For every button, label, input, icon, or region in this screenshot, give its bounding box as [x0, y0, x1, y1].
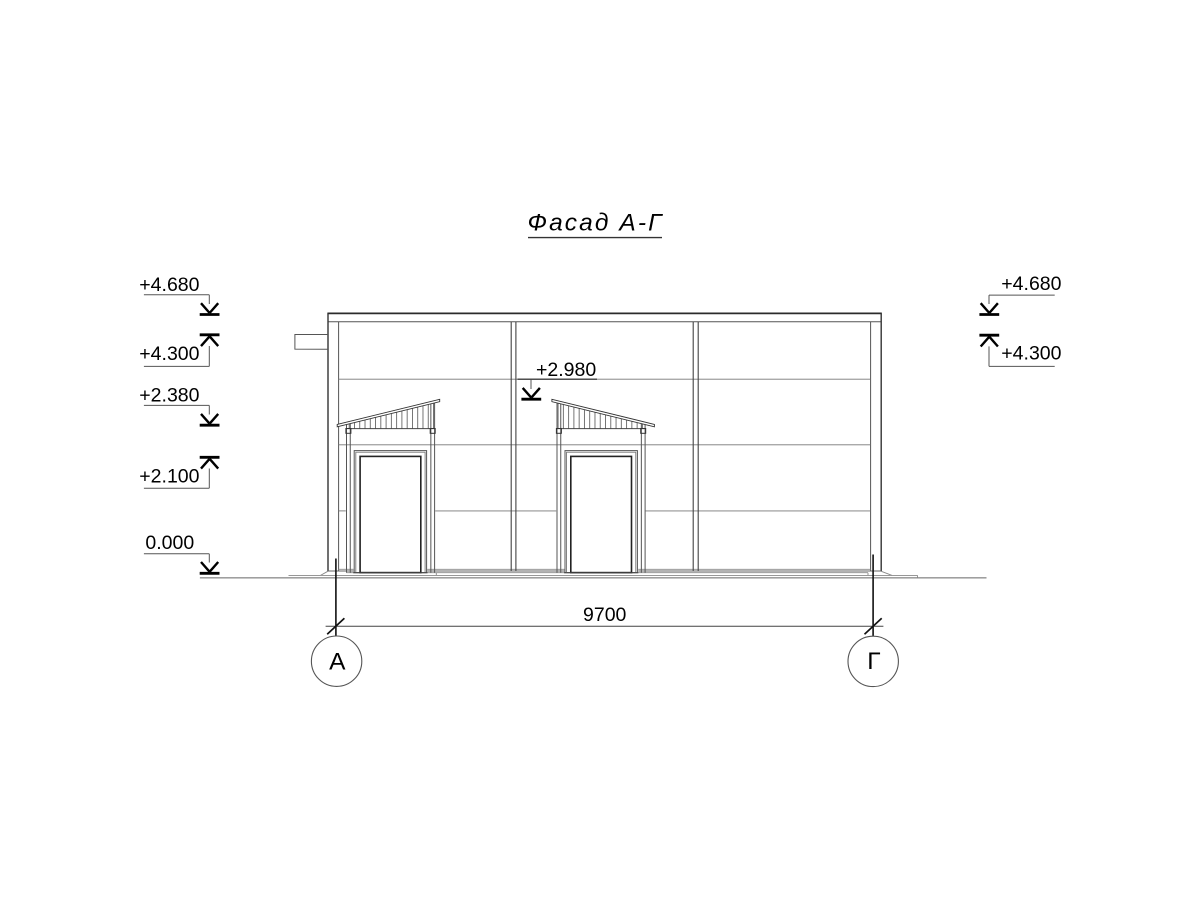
- svg-text:+4.300: +4.300: [139, 343, 199, 365]
- svg-text:А: А: [329, 649, 346, 676]
- svg-text:+2.980: +2.980: [536, 359, 596, 381]
- svg-text:+4.680: +4.680: [139, 274, 199, 296]
- svg-text:Г: Г: [867, 648, 880, 675]
- svg-text:9700: 9700: [583, 604, 627, 626]
- svg-text:Фасад А-Г: Фасад А-Г: [528, 210, 664, 237]
- svg-text:+2.100: +2.100: [139, 466, 199, 488]
- svg-text:+4.680: +4.680: [1001, 273, 1061, 295]
- svg-text:+4.300: +4.300: [1001, 342, 1061, 364]
- svg-text:0.000: 0.000: [145, 532, 194, 554]
- svg-text:+2.380: +2.380: [139, 385, 199, 407]
